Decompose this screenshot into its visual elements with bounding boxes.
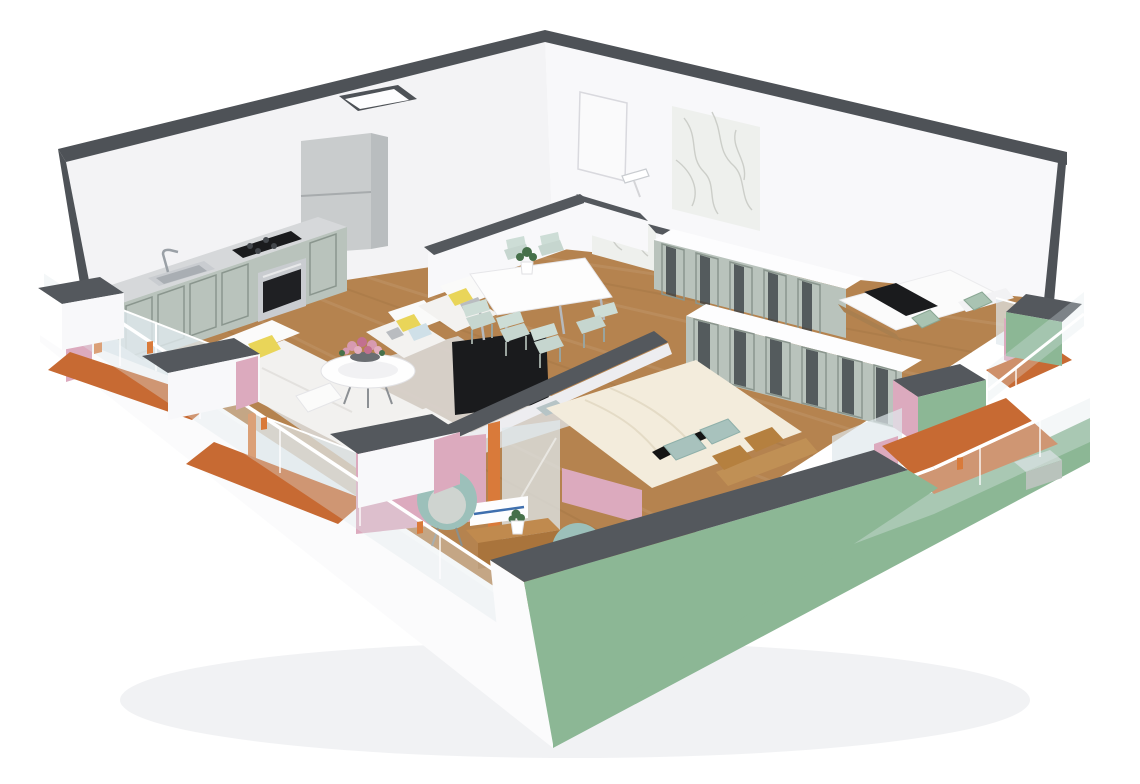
tall-fridge-cabinet-side xyxy=(371,133,388,249)
floorplan-3d-render xyxy=(0,0,1140,784)
pier-c-pink-side xyxy=(434,432,460,494)
flower-bowl xyxy=(350,352,380,362)
floorplan-scene xyxy=(0,0,1140,784)
pier-b-pink-side xyxy=(236,356,258,410)
entry-door xyxy=(578,92,627,181)
